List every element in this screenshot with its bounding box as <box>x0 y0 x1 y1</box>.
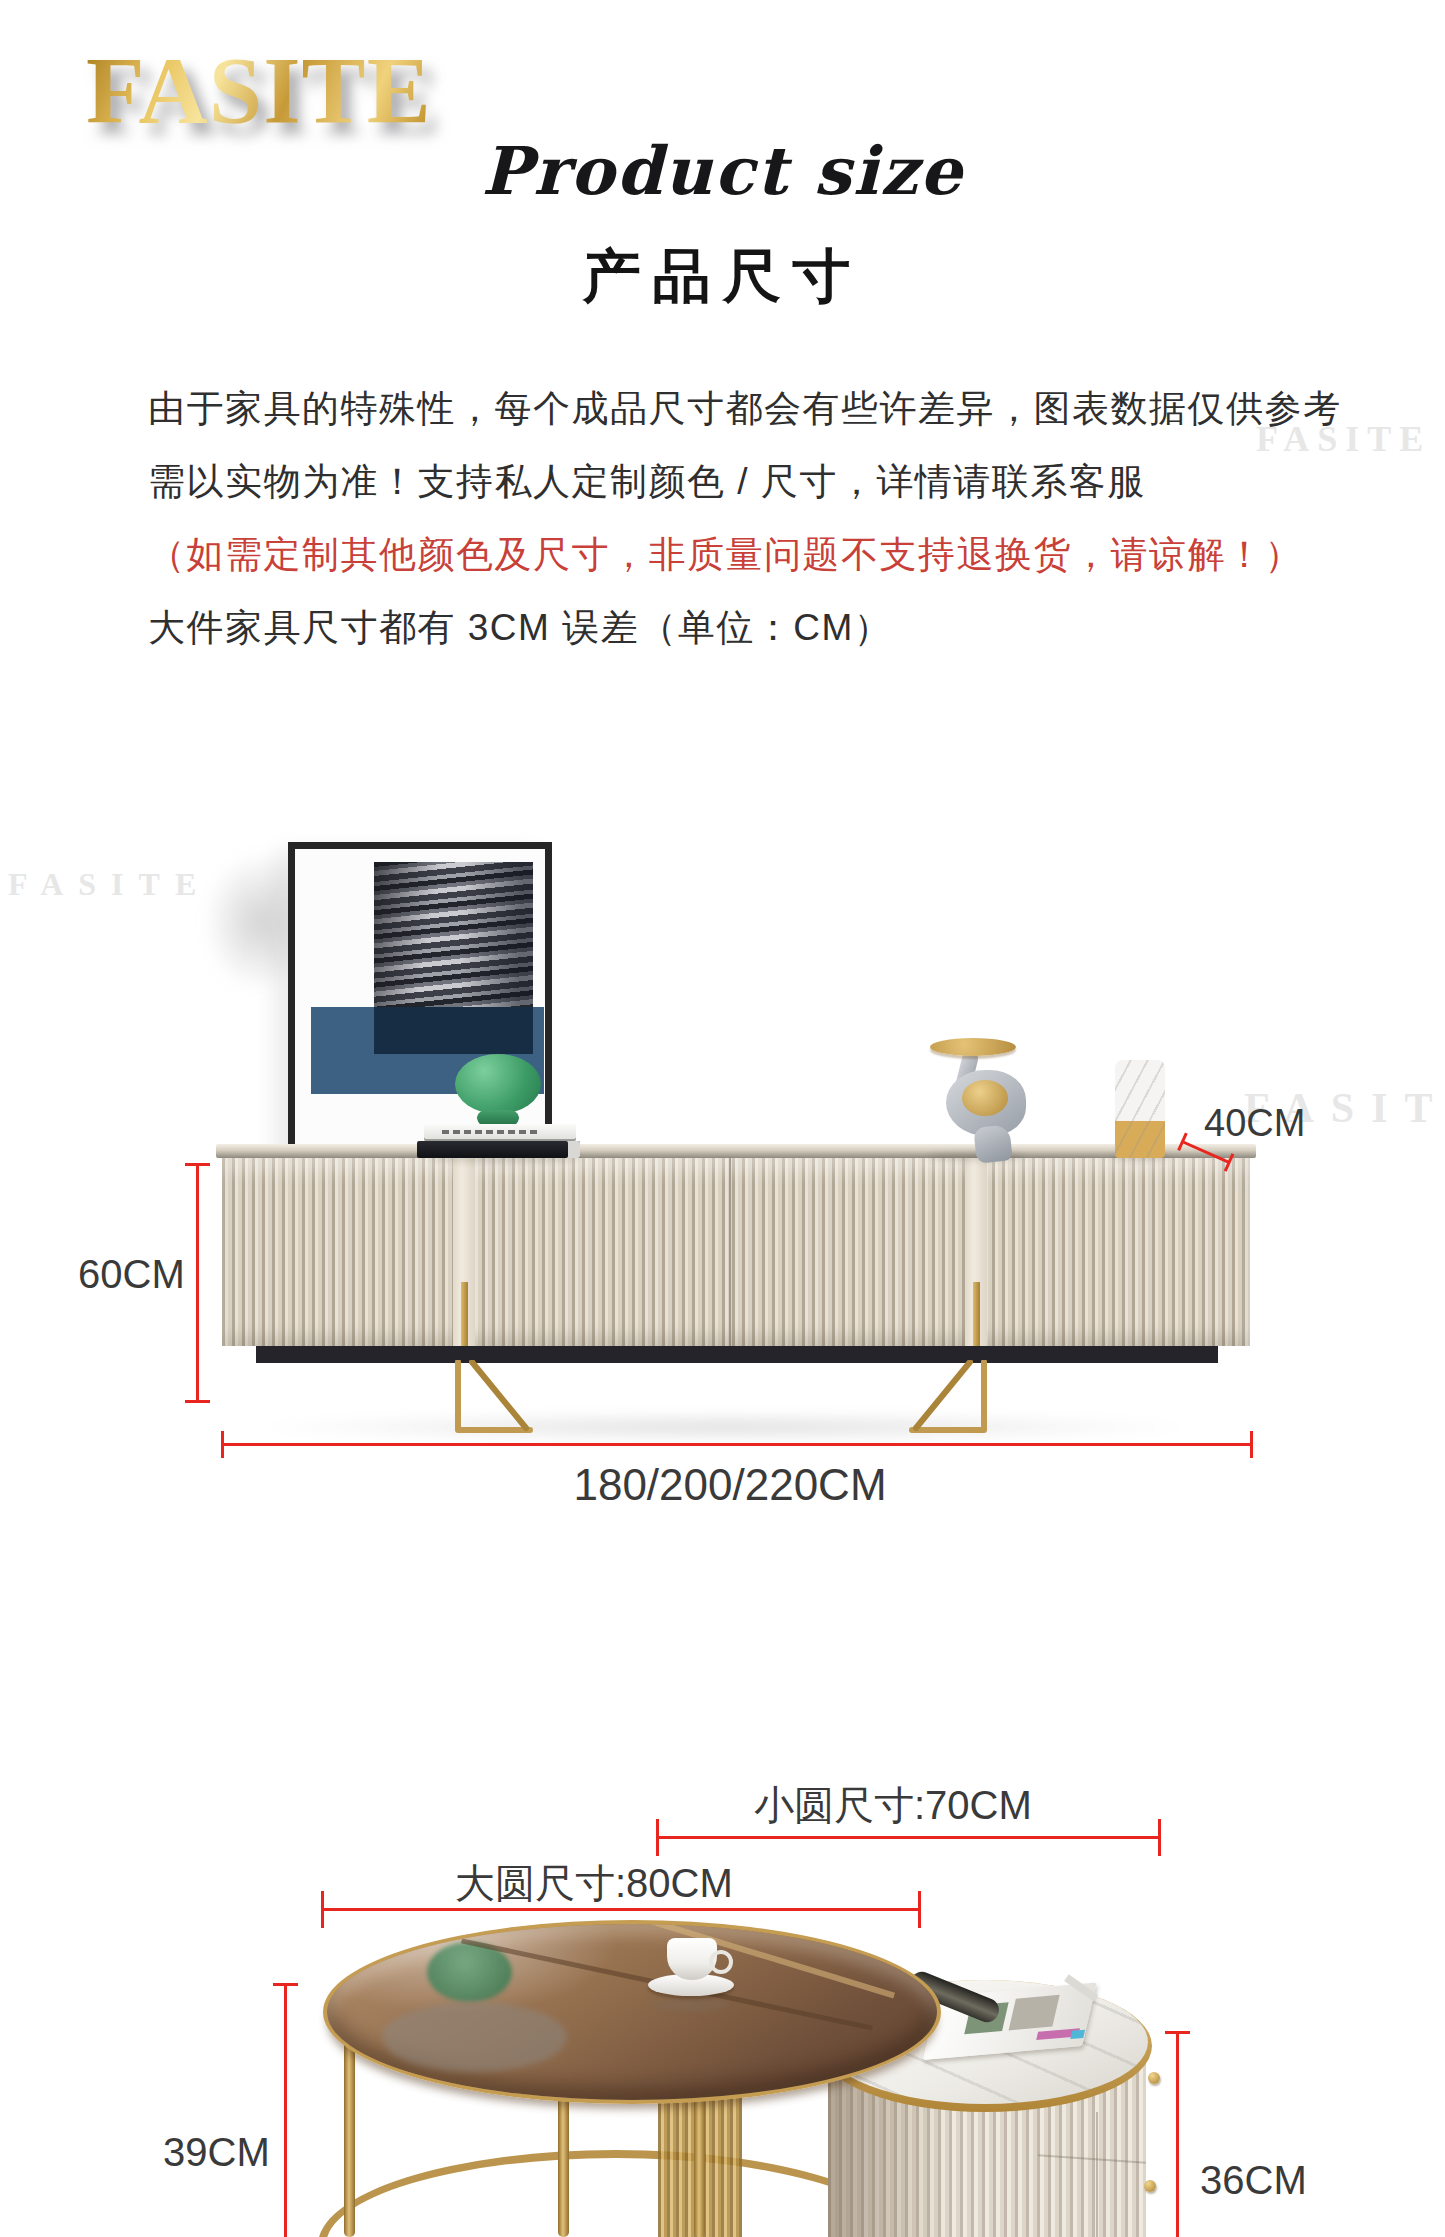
tv-cabinet-left-gold-rod <box>461 1282 468 1346</box>
glass-table-base-ring <box>318 2150 914 2237</box>
glass-table-leg-1 <box>344 2030 355 2237</box>
large-round-size-label: 大圆尺寸:80CM <box>455 1856 733 1911</box>
magazine-cyan-strip <box>1070 2030 1085 2039</box>
cabinet-height-label: 60CM <box>78 1252 185 1297</box>
magazine-photo-gray <box>1009 1995 1060 2031</box>
sculpture-gold-tray <box>930 1038 1016 1056</box>
artwork-navy-overlap <box>374 1007 533 1054</box>
dimension-line-large-table-height <box>284 1984 287 2237</box>
sculpture-gold-accent <box>962 1080 1008 1116</box>
dimension-line-small-round <box>657 1836 1160 1839</box>
notice-line-1: 由于家具的特殊性，每个成品尺寸都会有些许差异，图表数据仅供参考 <box>148 372 1378 445</box>
green-glass-lamp <box>455 1054 541 1114</box>
glass-reflection-marble <box>382 2002 567 2072</box>
small-table-height-label: 36CM <box>1200 2158 1307 2203</box>
tv-cabinet-door-seam <box>729 1158 731 1346</box>
drum-table-knob-lower <box>1144 2180 1156 2192</box>
drum-table-drawer-seam <box>1096 2112 1098 2237</box>
marble-cylinder-vase <box>1115 1060 1165 1158</box>
floor-shadow <box>250 1412 1200 1442</box>
page-title-english: Product size <box>0 132 1445 210</box>
large-table-height-label: 39CM <box>163 2130 270 2175</box>
tv-cabinet-right-gold-rod <box>973 1282 980 1346</box>
tv-cabinet-left-leg <box>448 1360 543 1436</box>
notice-line-4: 大件家具尺寸都有 3CM 误差（单位：CM） <box>148 591 1378 664</box>
notice-line-3-red: （如需定制其他颜色及尺寸，非质量问题不支持退换货，请谅解！） <box>148 518 1378 591</box>
cabinet-depth-label: 40CM <box>1204 1102 1305 1145</box>
tv-cabinet-body <box>222 1158 1250 1346</box>
tv-cabinet-plinth <box>256 1346 1218 1363</box>
tv-cabinet-top <box>216 1144 1256 1158</box>
magazine <box>914 1968 1112 2079</box>
book-white <box>424 1124 576 1141</box>
brand-logo: FASITE <box>86 38 432 144</box>
dimension-line-cabinet-height <box>196 1164 199 1402</box>
small-round-size-label: 小圆尺寸:70CM <box>754 1778 1032 1833</box>
book-black <box>417 1141 580 1158</box>
cabinet-width-label: 180/200/220CM <box>480 1460 980 1510</box>
product-size-page: FASITE FASITE FASITE FASITE Product size… <box>0 0 1445 2237</box>
dimension-line-cabinet-width <box>222 1443 1252 1446</box>
tv-cabinet-right-leg <box>900 1360 995 1436</box>
drum-table-knob-upper <box>1148 2072 1160 2084</box>
glass-table-top <box>323 1920 941 2104</box>
notice-line-2: 需以实物为准！支持私人定制颜色 / 尺寸，详情请联系客服 <box>148 445 1378 518</box>
page-title-chinese: 产品尺寸 <box>0 238 1445 316</box>
dimension-line-small-table-height <box>1176 2032 1179 2237</box>
notice-block: 由于家具的特殊性，每个成品尺寸都会有些许差异，图表数据仅供参考 需以实物为准！支… <box>148 372 1378 664</box>
coffee-cup-handle <box>709 1950 733 1974</box>
watermark-fasite-left: FASITE <box>8 866 211 903</box>
cup-reflection <box>652 1998 730 2012</box>
dimension-line-large-round <box>322 1908 920 1911</box>
